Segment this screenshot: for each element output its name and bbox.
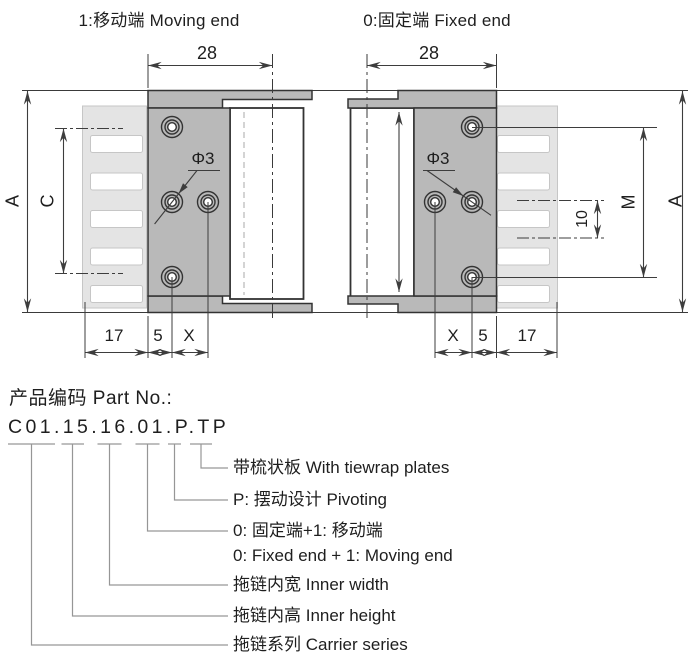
dim-hole-span-left: C (38, 195, 59, 208)
technical-drawing-page: 1:移动端 Moving end 0:固定端 Fixed end 28 28 Φ… (0, 0, 700, 667)
dim-bottom-left-17: 17 (105, 326, 124, 346)
dim-hole-dia-right: Φ3 (426, 149, 449, 169)
part-breakdown-connectors (8, 444, 228, 645)
dim-tooth-pitch: 10 (574, 210, 592, 228)
breakdown-carrier-series: 拖链系列 Carrier series (233, 634, 408, 656)
breakdown-pivoting: P: 摆动设计 Pivoting (233, 489, 387, 511)
dim-bottom-right-17: 17 (518, 326, 537, 346)
dim-hole-dia-left: Φ3 (191, 149, 214, 169)
dim-hole-span-right: M (619, 195, 640, 210)
part-no-code: C01.15.16.01.P.TP (8, 416, 229, 439)
dim-bottom-right-x: X (447, 326, 458, 346)
breakdown-inner-width: 拖链内宽 Inner width (233, 574, 389, 596)
dim-overall-height-left: A (3, 195, 24, 207)
moving-end-label: 1:移动端 Moving end (79, 6, 240, 31)
breakdown-tiewrap-plates: 带梳状板 With tiewrap plates (233, 457, 449, 479)
breakdown-inner-height: 拖链内高 Inner height (233, 605, 396, 627)
link-windows (230, 108, 414, 299)
breakdown-ends-en: 0: Fixed end + 1: Moving end (233, 545, 453, 567)
fixed-end-label: 0:固定端 Fixed end (363, 6, 511, 31)
dim-bottom-left-5: 5 (153, 326, 162, 346)
dim-bottom-left-x: X (183, 326, 194, 346)
breakdown-ends-cn: 0: 固定端+1: 移动端 (233, 520, 383, 542)
dim-width-right: 28 (419, 43, 439, 64)
dim-overall-height-right: A (666, 195, 687, 207)
part-no-heading: 产品编码 Part No.: (9, 383, 172, 410)
left-tiewrap-comb-plate (83, 106, 147, 308)
dim-width-left: 28 (197, 43, 217, 64)
dim-bottom-right-5: 5 (478, 326, 487, 346)
